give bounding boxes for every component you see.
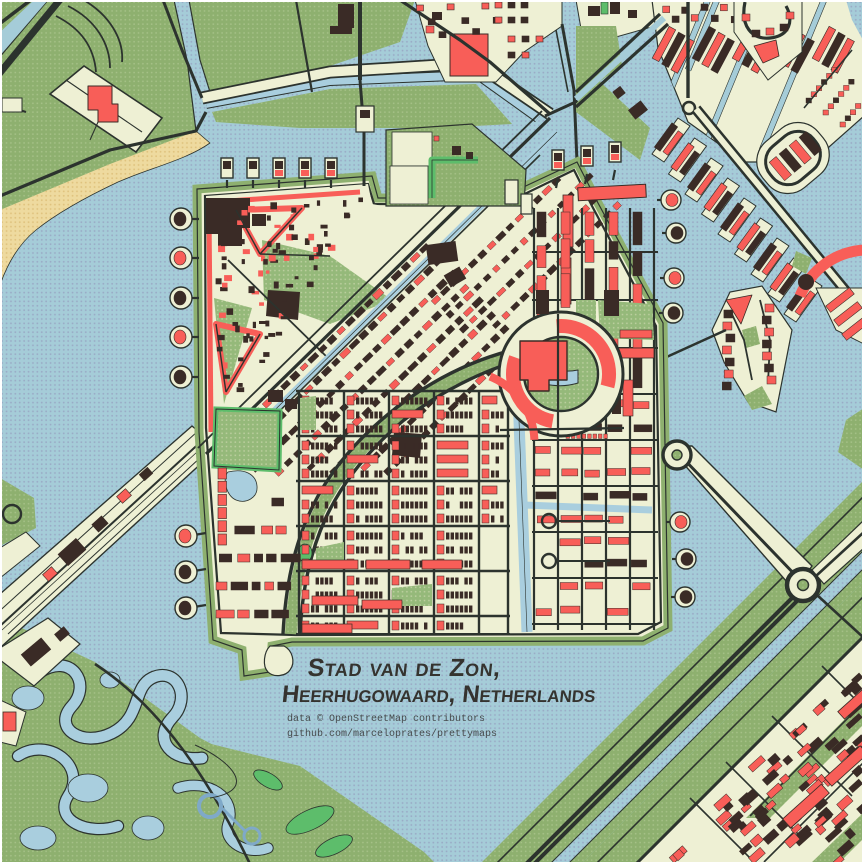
svg-text:github.com/marceloprates/prett: github.com/marceloprates/prettymaps bbox=[287, 728, 497, 740]
svg-text:data © OpenStreetMap contribut: data © OpenStreetMap contributors bbox=[287, 713, 485, 725]
svg-text:Heerhugowaard, Netherlands: Heerhugowaard, Netherlands bbox=[281, 681, 597, 708]
svg-text:Stad van de Zon,: Stad van de Zon, bbox=[306, 654, 502, 682]
